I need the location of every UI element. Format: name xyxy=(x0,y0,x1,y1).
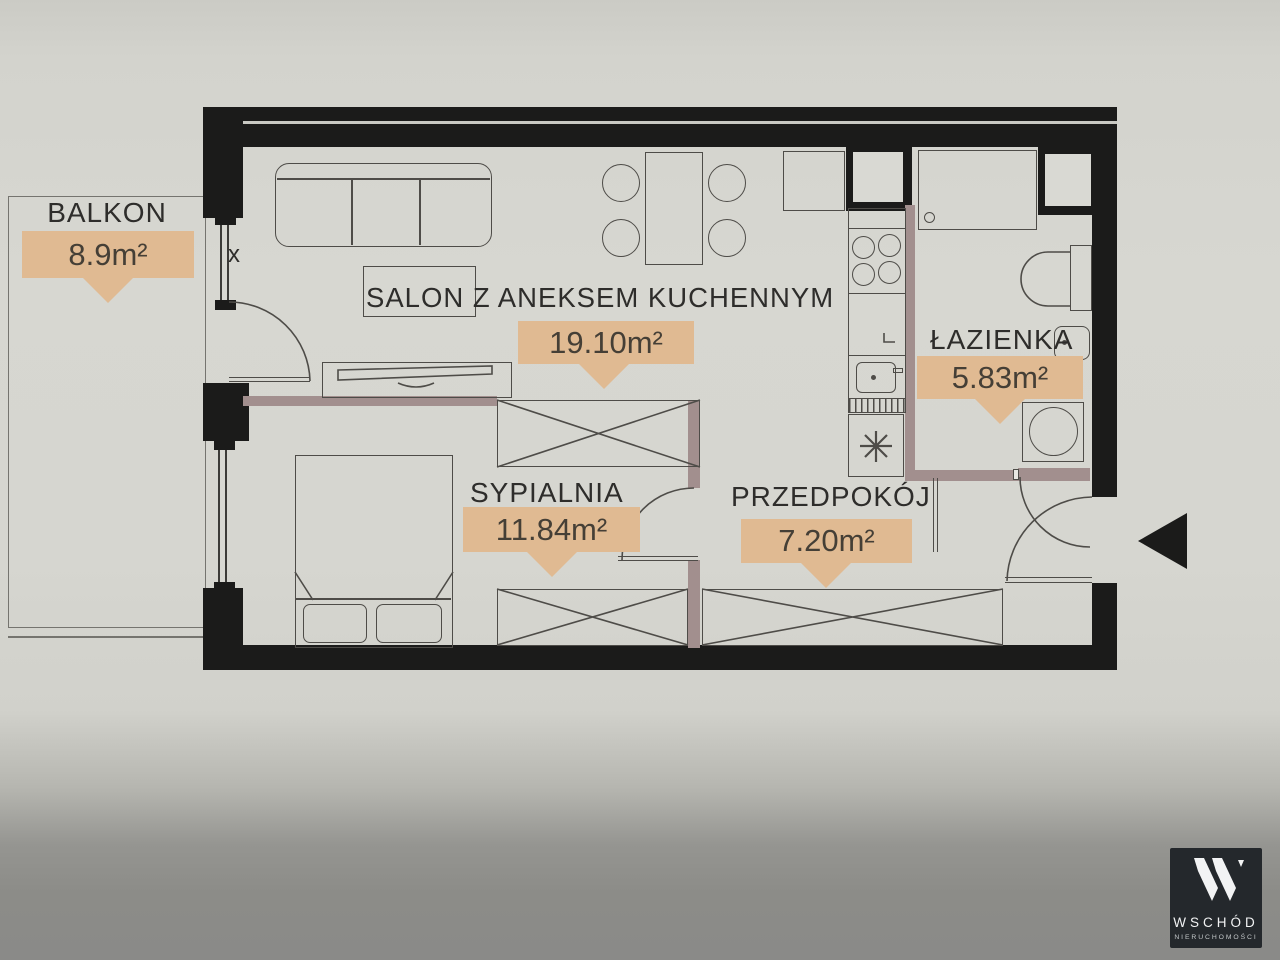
shower-drain xyxy=(924,212,935,223)
fridge xyxy=(848,414,904,477)
kitchen-counter-mid xyxy=(848,293,906,356)
bedroom-door-leaf xyxy=(618,556,698,561)
window-livingroom-cap-bottom xyxy=(215,300,236,310)
bathroom-door-arc xyxy=(1020,477,1090,547)
wschod-w-monogram-icon xyxy=(1188,858,1244,902)
area-tag-salon: 19.10m² xyxy=(518,321,694,364)
area-tag-sypialnia: 11.84m² xyxy=(463,507,640,552)
kitchen-sink-bowl xyxy=(856,362,896,393)
room-label-sypialnia: SYPIALNIA xyxy=(470,477,624,509)
balcony-door-leaf xyxy=(229,377,310,382)
room-label-przedpokoj: PRZEDPOKÓJ xyxy=(731,481,931,513)
dishwasher-hatch xyxy=(848,398,906,413)
toilet-bowl xyxy=(1021,252,1070,306)
wardrobe-bedroom-bottom xyxy=(497,589,688,646)
toilet-cistern xyxy=(1070,245,1092,311)
kitchen-counter-top xyxy=(848,208,906,229)
bathroom-door-leaf xyxy=(1018,468,1090,481)
partition-bathroom-hall xyxy=(905,470,1018,481)
sink-drain-dot xyxy=(871,375,876,380)
wardrobe-hallway xyxy=(702,589,1003,646)
hob-burner-4 xyxy=(878,261,901,284)
entrance-door-leaf xyxy=(1005,577,1092,583)
dining-chair-2 xyxy=(602,219,640,257)
dining-table xyxy=(645,152,703,265)
dining-chair-4 xyxy=(708,219,746,257)
entrance-door-arc xyxy=(1007,497,1092,581)
window-bedroom xyxy=(218,448,227,584)
wall-bottom xyxy=(205,645,1117,670)
balcony-door-arc xyxy=(229,302,310,381)
sofa xyxy=(275,163,492,247)
bathroom-door-jamb xyxy=(1013,469,1019,480)
window-livingroom-cap-top xyxy=(215,215,236,225)
area-tag-salon-pointer xyxy=(578,363,630,389)
area-tag-przedpokoj-pointer xyxy=(800,562,852,588)
hob-burner-2 xyxy=(878,234,901,257)
window-mark: x xyxy=(228,241,240,269)
wall-top xyxy=(205,107,1117,147)
hob-burner-3 xyxy=(852,263,875,286)
tv-cabinet xyxy=(322,362,512,398)
floorplan-photo: BALKON 8.9m² x xyxy=(0,0,1280,960)
window-bedroom-cap-bottom xyxy=(214,582,235,592)
agency-logo: WSCHÓD NIERUCHOMOŚCI xyxy=(1170,848,1262,948)
washing-machine-drum xyxy=(1029,407,1078,456)
wardrobe-bedroom-top xyxy=(497,400,700,467)
dining-chair-3 xyxy=(708,164,746,202)
sofa-divider-1 xyxy=(351,180,353,245)
logo-title: WSCHÓD xyxy=(1170,915,1262,930)
window-bedroom-cap-top xyxy=(214,440,235,450)
shower-tray xyxy=(918,150,1037,230)
wall-top-joint-line xyxy=(216,121,1117,124)
room-label-salon: SALON Z ANEKSEM KUCHENNYM xyxy=(366,282,834,314)
room-label-balkon: BALKON xyxy=(8,197,206,229)
entrance-arrow-icon xyxy=(1138,513,1187,569)
wall-left-mid xyxy=(203,383,249,441)
sofa-back-line xyxy=(277,178,490,180)
kitchen-corner-counter xyxy=(783,151,845,211)
partition-kitchen-bathroom xyxy=(905,205,915,480)
dining-chair-1 xyxy=(602,164,640,202)
room-label-lazienka: ŁAZIENKA xyxy=(930,324,1073,356)
shaft-box-bathroom-inner xyxy=(1045,154,1091,206)
area-tag-balkon: 8.9m² xyxy=(22,231,194,278)
sink-faucet xyxy=(893,368,903,373)
logo-subtitle: NIERUCHOMOŚCI xyxy=(1170,934,1262,941)
area-tag-przedpokoj: 7.20m² xyxy=(741,519,912,563)
bed-pillow-left xyxy=(303,604,367,643)
bed-pillow-right xyxy=(376,604,442,643)
partition-bedroom-hall-lower xyxy=(688,560,700,648)
area-tag-balkon-pointer xyxy=(82,277,134,303)
area-tag-sypialnia-pointer xyxy=(526,551,578,577)
hob-burner-1 xyxy=(852,236,875,259)
entrance-side-post xyxy=(933,478,938,552)
shaft-box-kitchen-inner xyxy=(853,152,903,202)
area-tag-lazienka-pointer xyxy=(974,398,1026,424)
balcony-edge-line xyxy=(8,636,207,638)
sofa-divider-2 xyxy=(419,180,421,245)
area-tag-lazienka: 5.83m² xyxy=(917,356,1083,399)
wall-left-upper xyxy=(203,107,243,218)
bed-mattress-line xyxy=(296,598,451,600)
